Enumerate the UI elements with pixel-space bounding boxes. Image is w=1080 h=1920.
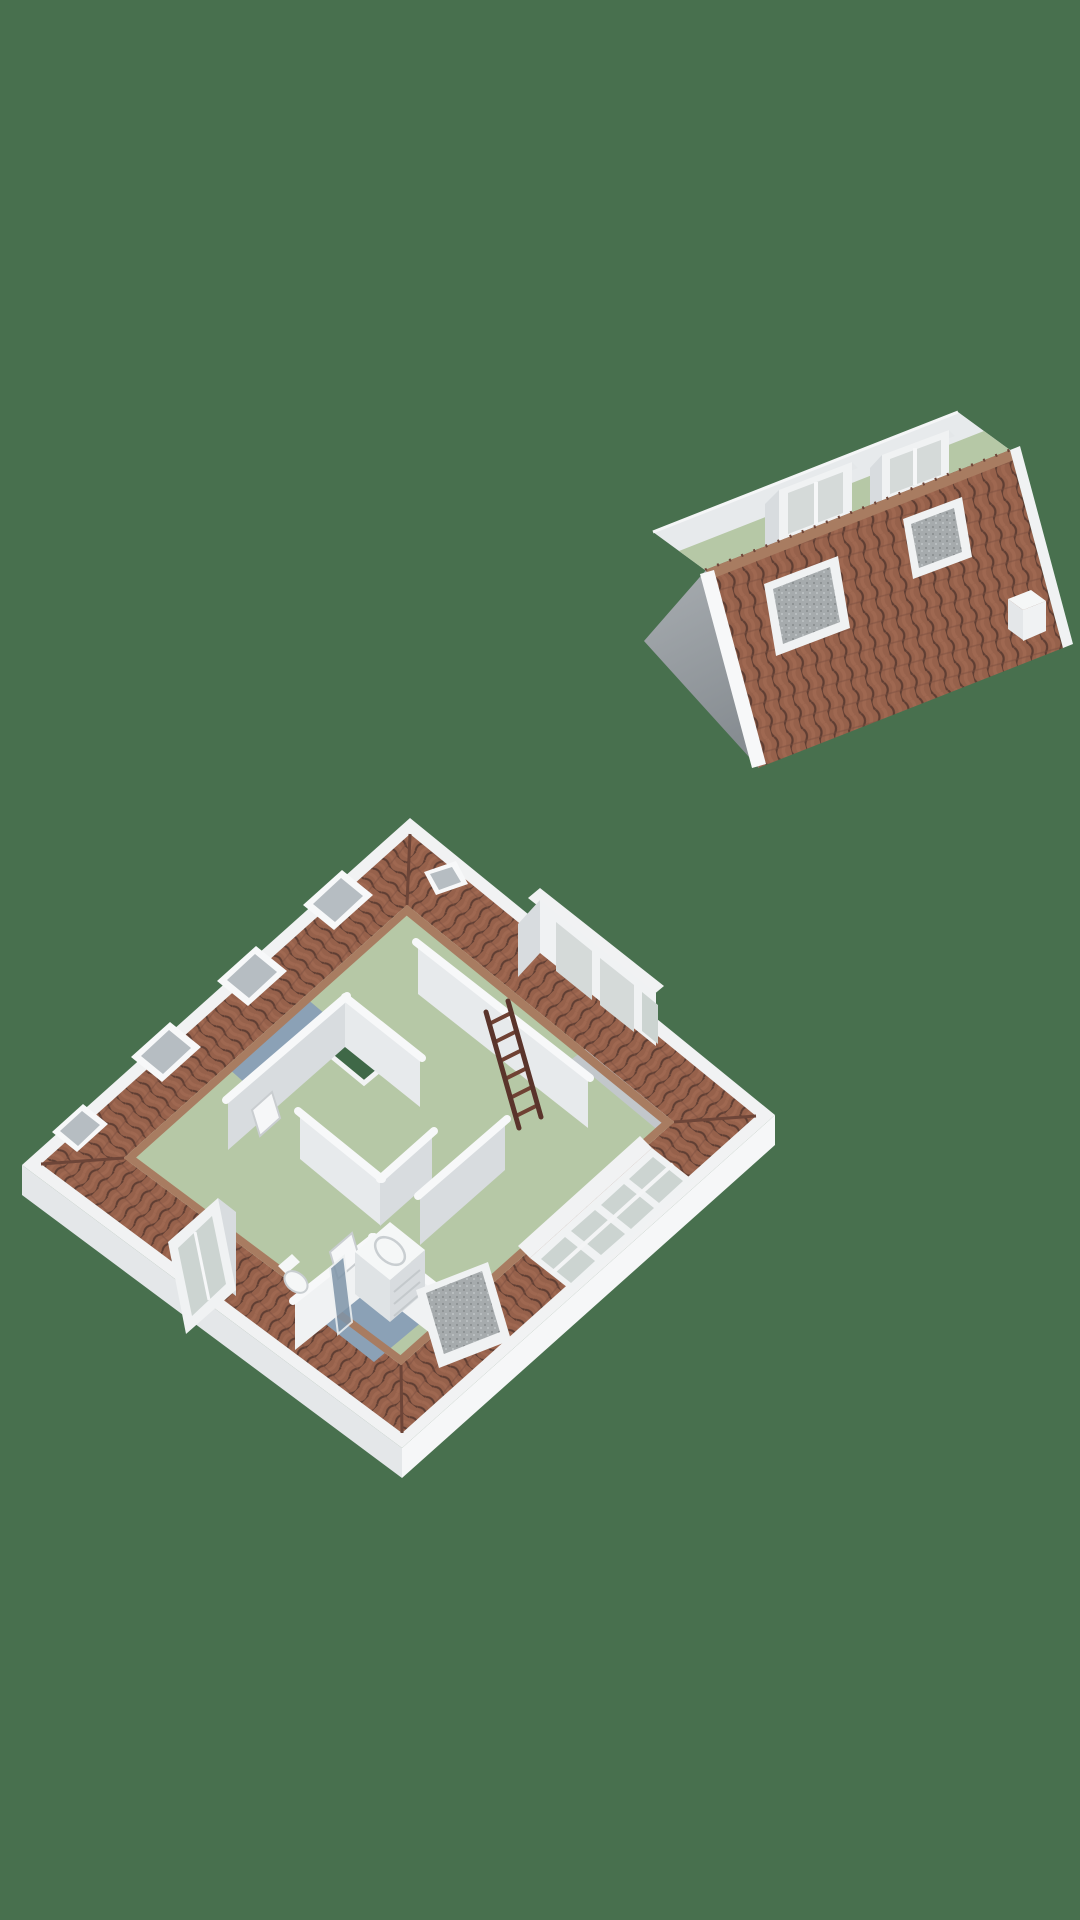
floorplan-3d-render bbox=[0, 0, 1080, 1920]
floorplan-viewer-canvas[interactable] bbox=[0, 0, 1080, 1920]
